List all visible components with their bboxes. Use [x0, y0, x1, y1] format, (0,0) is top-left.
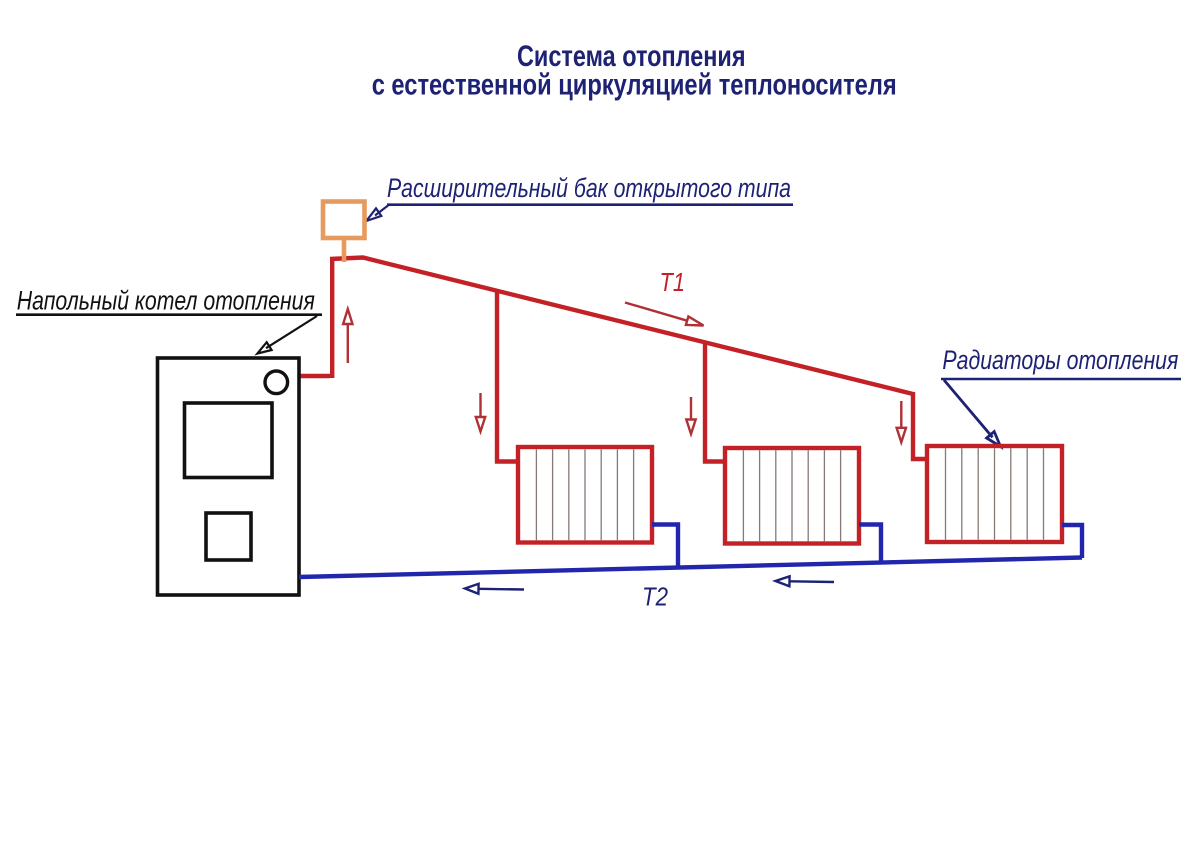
svg-text:Т2: Т2 — [642, 582, 668, 612]
svg-text:Напольный котел отопления: Напольный котел отопления — [17, 285, 315, 315]
svg-text:Расширительный бак открытого т: Расширительный бак открытого типа — [387, 173, 791, 203]
svg-text:Радиаторы отопления: Радиаторы отопления — [942, 345, 1178, 375]
svg-text:Т1: Т1 — [660, 267, 686, 297]
svg-text:с естественной циркуляцией теп: с естественной циркуляцией теплоносителя — [372, 69, 897, 102]
